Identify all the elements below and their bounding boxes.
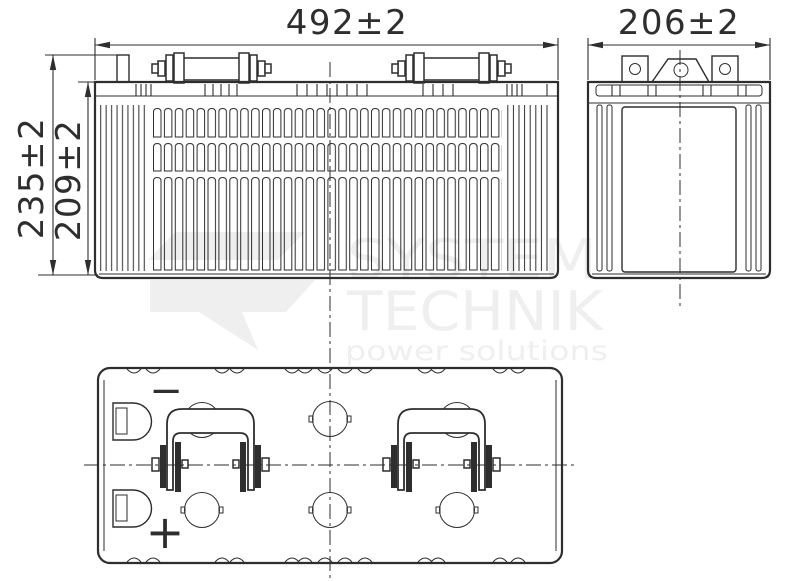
side-bracket-right xyxy=(712,56,738,82)
front-terminal-post xyxy=(117,55,129,82)
negative-symbol: − xyxy=(149,368,183,414)
total-height-label: 235±2 xyxy=(12,117,52,240)
watermark-line3: power solutions xyxy=(345,336,608,367)
front-view xyxy=(95,53,558,278)
side-bracket-right-hole xyxy=(720,64,731,75)
side-rib xyxy=(756,105,761,271)
side-bracket-left-hole xyxy=(630,64,641,75)
front-handle-right xyxy=(392,53,511,83)
dimension-side-depth: 206±2 xyxy=(588,3,770,80)
case-height-label: 209±2 xyxy=(49,119,89,242)
side-terminal-hole xyxy=(674,63,688,77)
terminal-negative xyxy=(113,403,152,440)
side-rib xyxy=(597,105,602,271)
front-right-ribs xyxy=(505,105,549,271)
positive-symbol: + xyxy=(146,505,185,559)
top-edge-scallops-bottom xyxy=(127,558,525,562)
side-view xyxy=(588,56,770,278)
front-lid-ticks xyxy=(136,84,547,96)
side-depth-label: 206±2 xyxy=(618,3,741,43)
front-slot-band-2 xyxy=(152,142,502,172)
battery-technical-drawing: SYSTEM TECHNIK power solutions xyxy=(0,0,790,581)
front-handle-left xyxy=(152,53,271,83)
side-lid-inset xyxy=(596,85,762,96)
front-slot-band-3 xyxy=(152,176,502,271)
watermark-logo-arrow xyxy=(150,280,315,350)
side-rib xyxy=(607,105,612,271)
front-slot-band-1 xyxy=(152,107,502,138)
top-edge-scallops-top xyxy=(127,369,525,373)
watermark-line2: TECHNIK xyxy=(346,280,605,343)
front-width-label: 492±2 xyxy=(286,3,409,43)
side-lid-ticks xyxy=(612,85,746,96)
side-rib xyxy=(746,105,751,271)
side-center-panel xyxy=(622,107,736,272)
front-left-ribs xyxy=(98,105,149,271)
drawing-svg: SYSTEM TECHNIK power solutions xyxy=(0,0,790,581)
side-bracket-left xyxy=(622,56,648,82)
top-handle-left xyxy=(152,409,269,492)
side-case-outline xyxy=(588,82,770,278)
top-handle-right xyxy=(383,409,500,492)
